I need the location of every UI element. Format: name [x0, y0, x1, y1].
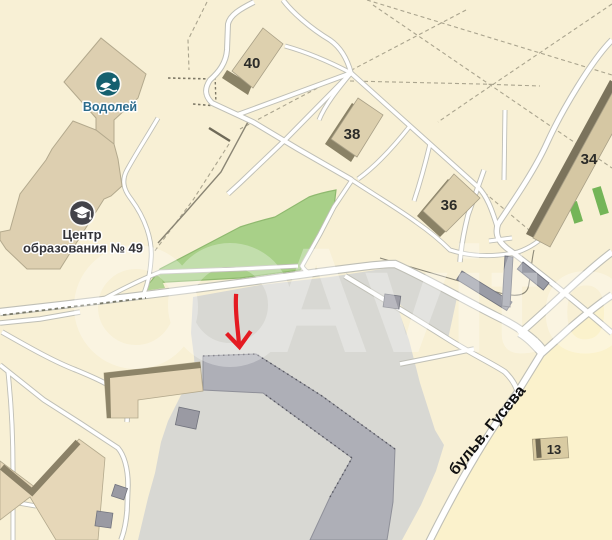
svg-text:13: 13 [547, 442, 561, 457]
svg-text:образования № 49: образования № 49 [23, 241, 143, 256]
svg-text:Avito: Avito [262, 216, 612, 384]
svg-text:Водолей: Водолей [83, 100, 137, 114]
svg-text:36: 36 [441, 197, 458, 214]
svg-text:40: 40 [244, 55, 261, 72]
svg-text:38: 38 [344, 126, 361, 143]
svg-text:34: 34 [581, 151, 598, 168]
